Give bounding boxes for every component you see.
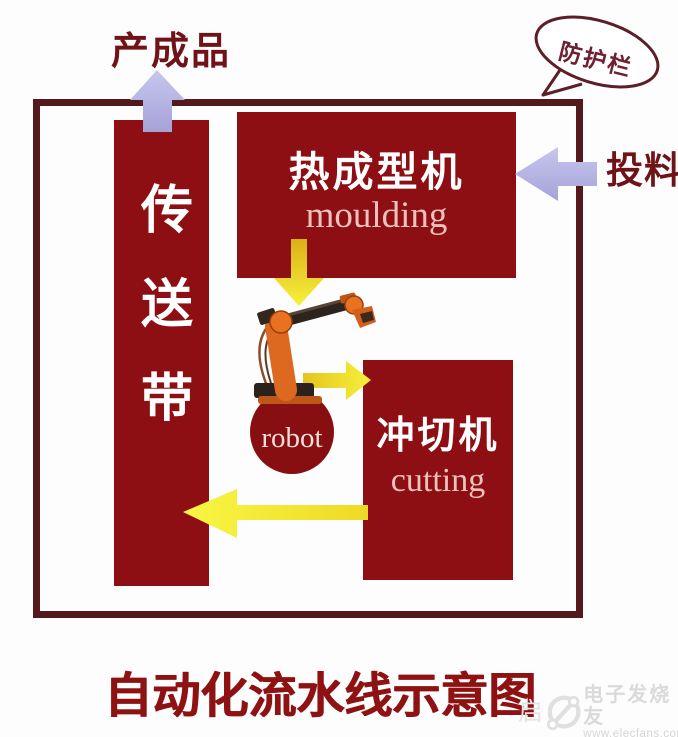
- finished-product-label: 产成品: [111, 33, 231, 71]
- assembly-line-diagram: 传送带 热成型机 moulding 冲切机 cutting robot: [0, 0, 678, 737]
- cutting-machine-block: 冲切机 cutting: [363, 360, 513, 580]
- robot-label: robot: [250, 422, 334, 455]
- conveyor-belt-label: 传送带: [136, 182, 188, 464]
- moulding-label-en: moulding: [237, 194, 516, 237]
- diagram-title: 自动化流水线示意图: [88, 668, 552, 726]
- moulding-machine-block: 热成型机 moulding: [237, 112, 516, 278]
- watermark-url: www.elecfans.com: [583, 728, 678, 737]
- guardrail-label: 防护栏: [556, 40, 634, 80]
- watermark: 启 电子发烧友 www.elecfans.com: [518, 684, 678, 737]
- watermark-brand: 电子发烧友: [583, 684, 678, 728]
- feeding-label: 投料: [606, 152, 678, 189]
- cutting-label-zh: 冲切机: [363, 404, 513, 459]
- moulding-label-zh: 热成型机: [237, 138, 516, 198]
- robot-circle: robot: [250, 390, 334, 474]
- conveyor-belt-block: 传送带: [114, 120, 209, 586]
- watermark-extra-glyph: 启: [518, 700, 543, 725]
- cutting-label-en: cutting: [363, 462, 513, 500]
- elecfans-logo-icon: [545, 691, 581, 735]
